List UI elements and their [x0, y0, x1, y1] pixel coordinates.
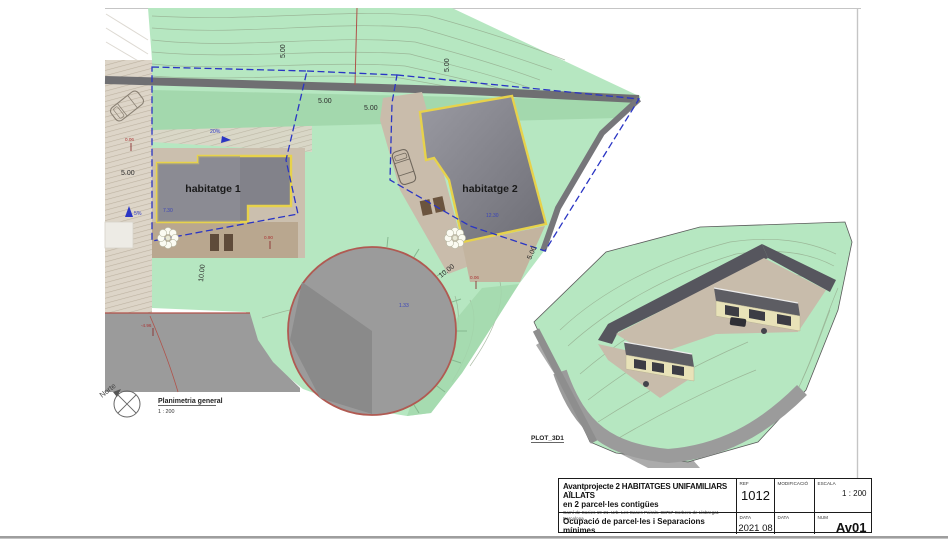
dim-5m: 5.00	[121, 170, 135, 177]
data2-cell: DATA	[774, 512, 814, 534]
building1-label: habitatge 1	[185, 183, 241, 195]
patio-table-3d	[643, 381, 649, 387]
dim-730: 7.30	[163, 208, 173, 214]
neighbor-structure	[105, 222, 133, 248]
spot-level-006: 0.06	[125, 137, 134, 142]
project-title-line1: Avantprojecte 2 HABITATGES UNIFAMILIARS …	[563, 482, 733, 500]
building2-label: habitatge 2	[462, 183, 518, 195]
spot-level-006: 0.06	[470, 275, 479, 280]
site-plan-svg: habitatge 1 habitatge 2 5.00 5.00 5.00 5…	[0, 0, 948, 542]
ref-cell: REF 1012	[736, 479, 774, 512]
slope-20-label: 20%	[210, 129, 221, 135]
view3d-label: PLOT_3D1	[531, 435, 564, 442]
num-value: Av01	[815, 520, 872, 535]
sheet-title-cell: Ocupació de parcel·les i Separacions mín…	[559, 512, 736, 534]
tree-icon	[157, 227, 178, 248]
data2-label: DATA	[775, 513, 814, 520]
dim-1230: 12.30	[486, 213, 499, 219]
ref-label: REF	[737, 479, 774, 486]
escala-cell: ESCALA 1 : 200	[814, 479, 872, 512]
dim-5m: 5.00	[444, 58, 451, 72]
ref-value: 1012	[737, 488, 774, 503]
escala-value: 1 : 200	[815, 489, 872, 498]
view-title: Planimetria general	[158, 398, 223, 405]
dim-133: 1.33	[399, 303, 409, 309]
sheet-border-bottom	[0, 536, 948, 539]
sheet-title: Ocupació de parcel·les i Separacions mín…	[559, 513, 736, 535]
num-cell: NUM Av01	[814, 512, 872, 534]
modificacio-label: MODIFICACIÓ	[775, 479, 814, 486]
data1-label: DATA	[737, 513, 774, 520]
tree-icon	[444, 227, 465, 248]
neighbor-roof-hatch	[106, 14, 148, 62]
dim-5m: 5.00	[318, 98, 332, 105]
dim-5m: 5.00	[280, 44, 287, 58]
project-cell: Avantprojecte 2 HABITATGES UNIFAMILIARS …	[559, 479, 736, 512]
project-title-line2: en 2 parcel·les contigües	[563, 500, 733, 509]
slope-5-label: 5%	[134, 211, 142, 217]
terrace-door	[210, 234, 219, 251]
drawing-sheet: habitatge 1 habitatge 2 5.00 5.00 5.00 5…	[0, 0, 948, 542]
escala-label: ESCALA	[815, 479, 872, 486]
spot-level-090: 0.90	[264, 235, 273, 240]
spot-level-neg496: -4.96	[141, 323, 152, 328]
view-title-block: Planimetria general 1 : 200	[158, 398, 223, 415]
modificacio-cell: MODIFICACIÓ	[774, 479, 814, 512]
view-3d: PLOT_3D1	[531, 222, 852, 468]
dim-5m: 5.00	[364, 105, 378, 112]
terrace-door	[224, 234, 233, 251]
data1-cell: DATA 2021 08	[736, 512, 774, 534]
patio-table-3d	[761, 328, 767, 334]
title-block: Avantprojecte 2 HABITATGES UNIFAMILIARS …	[558, 478, 872, 533]
data1-value: 2021 08	[737, 523, 774, 534]
view-scale: 1 : 200	[158, 409, 175, 415]
street-hatched	[105, 60, 152, 315]
